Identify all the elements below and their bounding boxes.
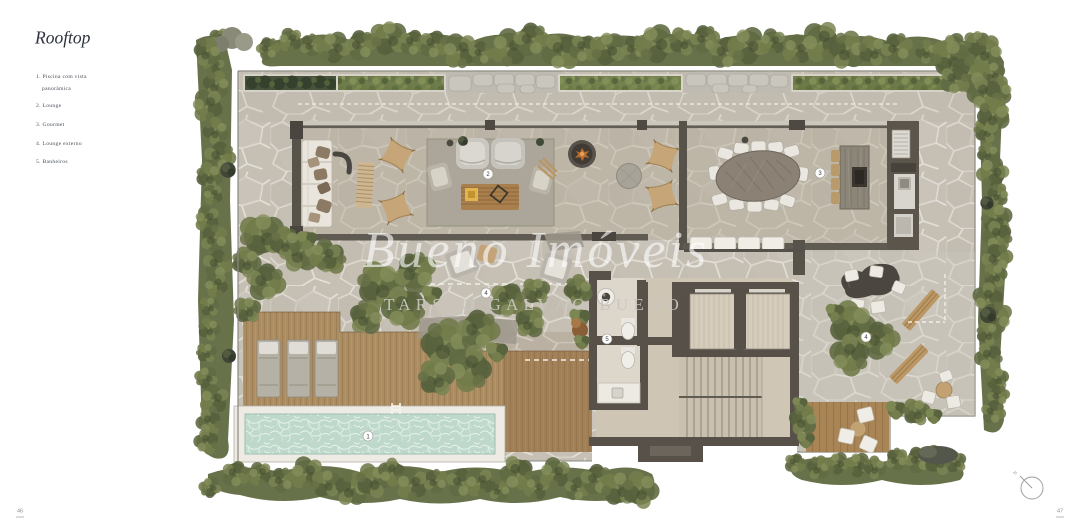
- svg-text:3. Gourmet: 3. Gourmet: [36, 122, 65, 128]
- svg-text:TARSSO GALVÃO BUENO: TARSSO GALVÃO BUENO: [384, 295, 684, 314]
- svg-text:1. Piscina com vista: 1. Piscina com vista: [36, 74, 87, 80]
- svg-text:2. Lounge: 2. Lounge: [36, 103, 62, 109]
- svg-text:47: 47: [1057, 509, 1063, 515]
- svg-text:Rooftop: Rooftop: [34, 28, 91, 48]
- svg-text:46: 46: [17, 509, 23, 515]
- svg-text:Bueno Imóveis: Bueno Imóveis: [363, 222, 710, 279]
- svg-text:panorâmica: panorâmica: [42, 86, 71, 92]
- svg-text:5. Banheiros: 5. Banheiros: [36, 159, 68, 165]
- svg-text:4. Lounge externo: 4. Lounge externo: [36, 141, 82, 147]
